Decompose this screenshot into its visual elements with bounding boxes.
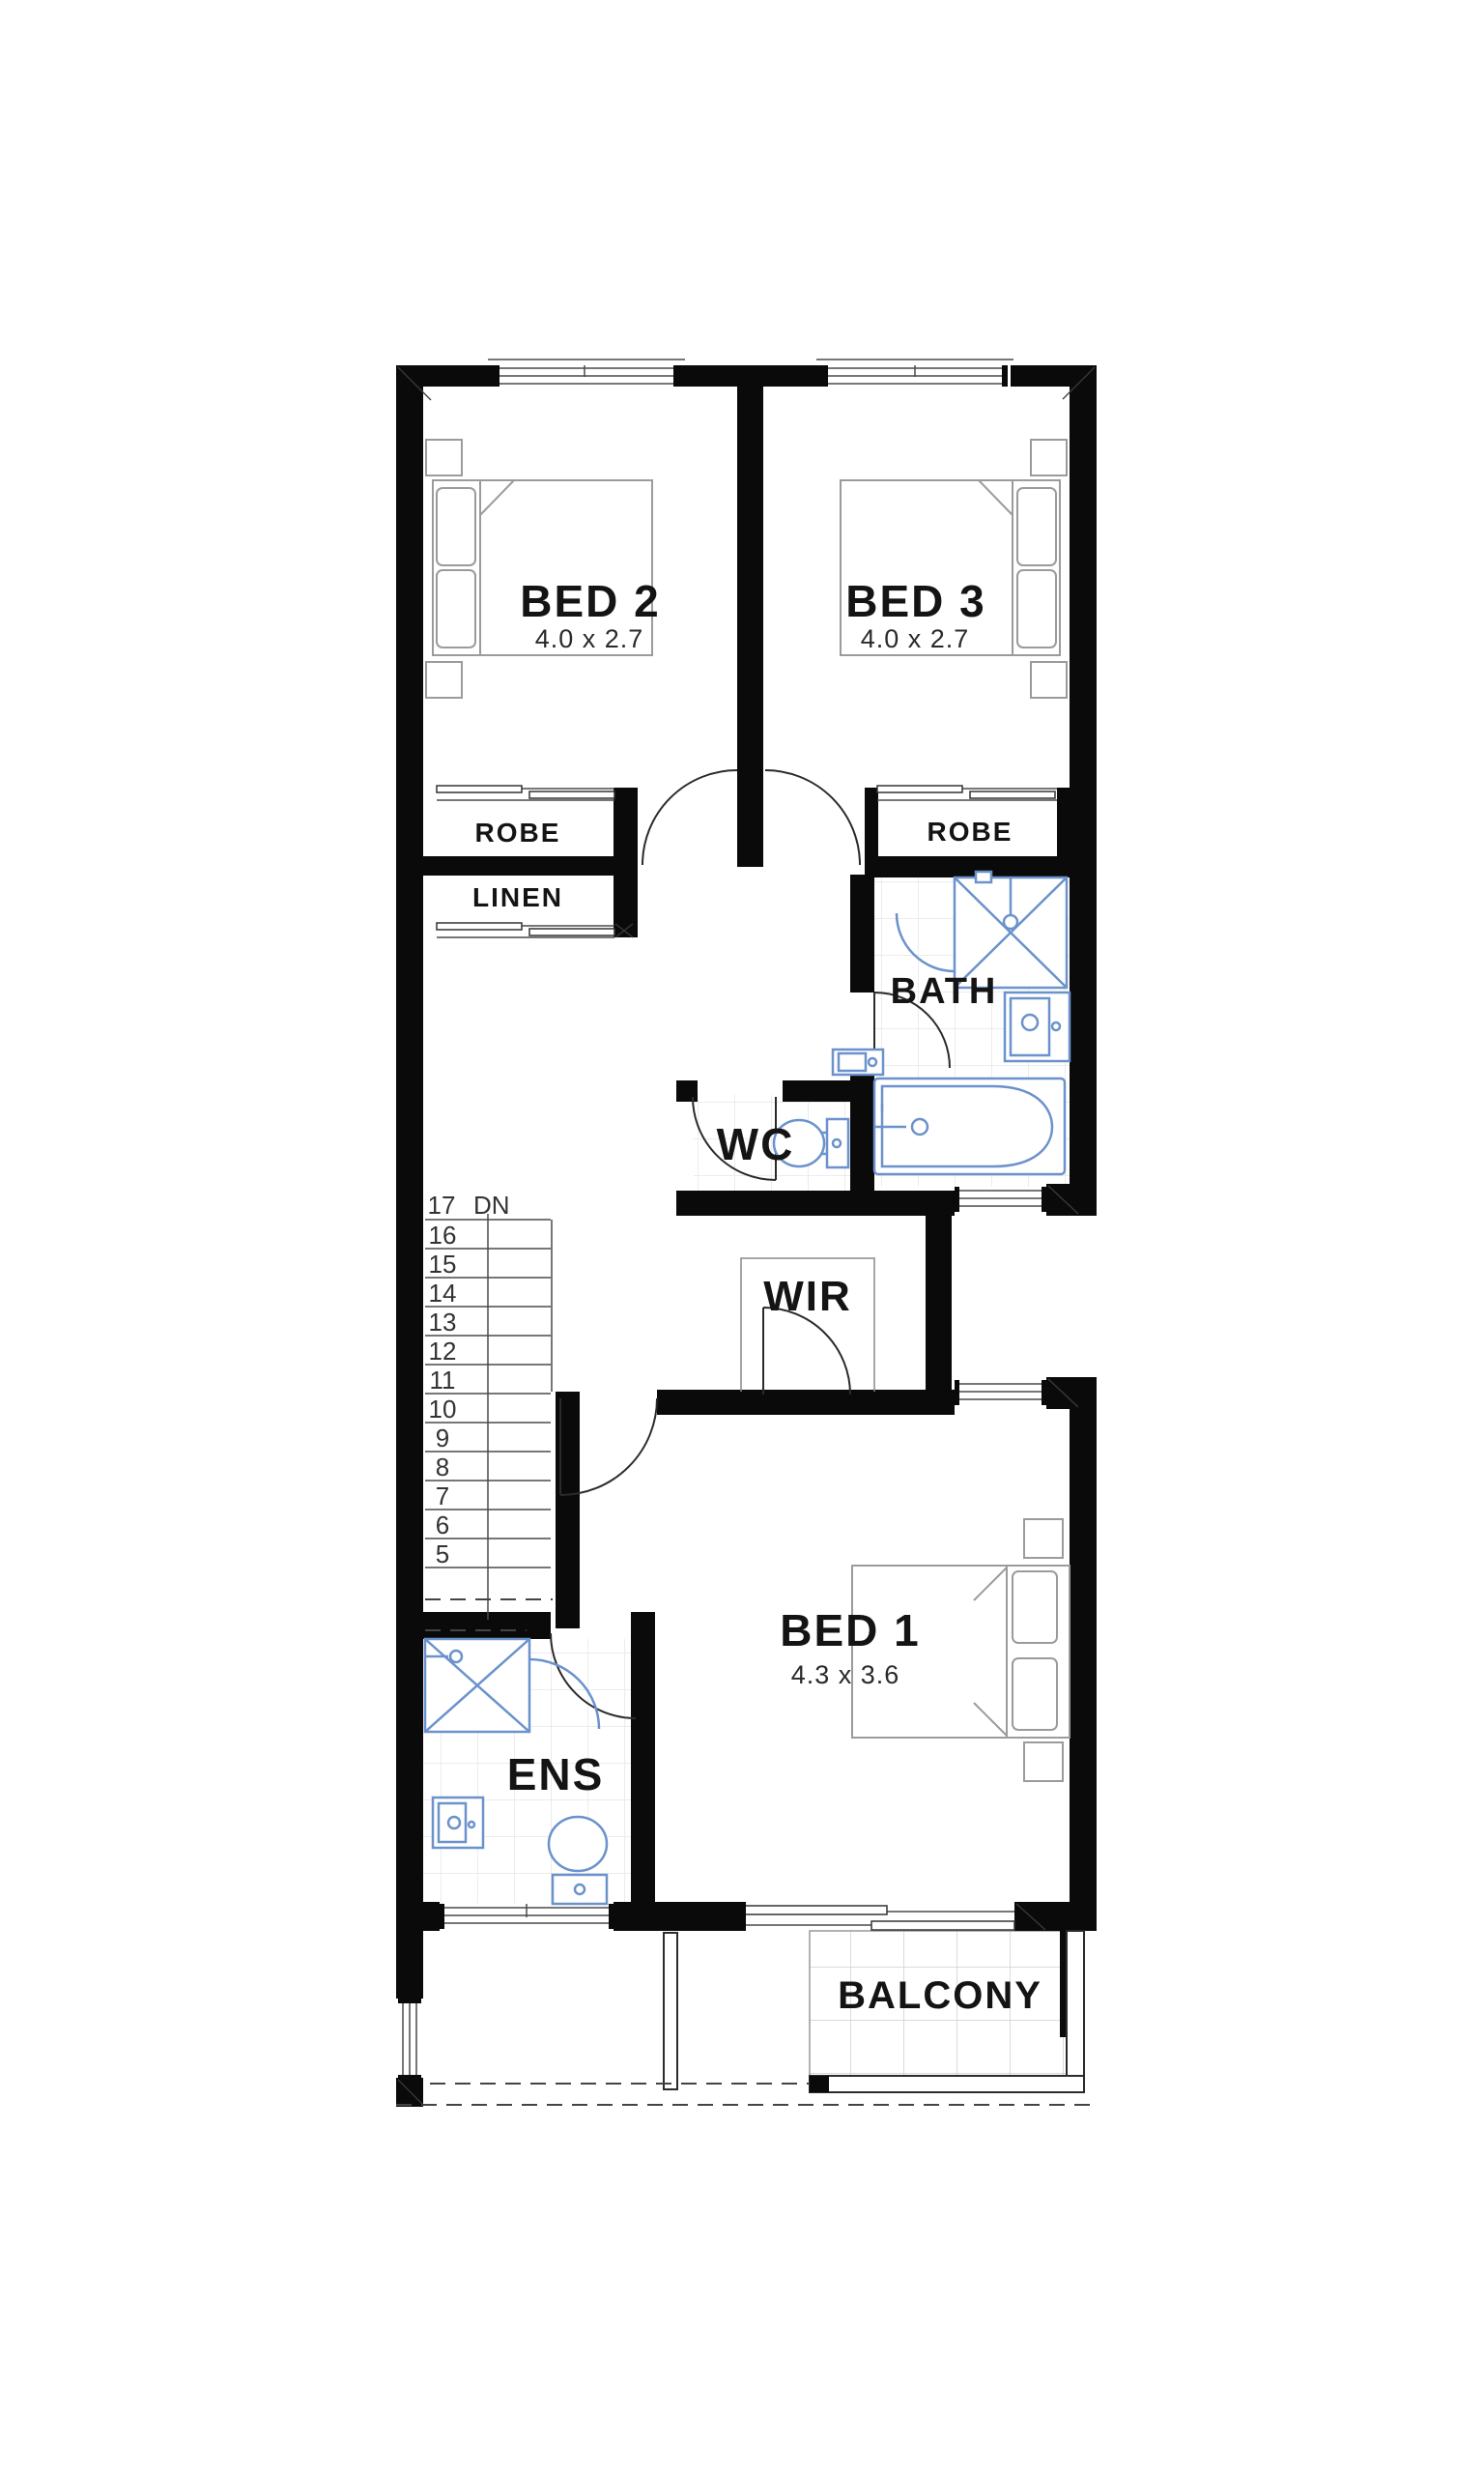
bed3-door-swing [765,770,860,865]
floor-plan-canvas: 17 DN 16 15 14 13 12 11 10 9 8 7 6 5 [0,0,1484,2474]
stair-tread-number: 9 [436,1424,449,1453]
balcony-railing-bottom [810,2076,1084,2092]
bathtub-icon [874,1079,1065,1174]
robe-right-label: ROBE [927,817,1013,847]
wir-door-swing [763,1308,850,1395]
bed1-label: BED 1 [780,1605,920,1655]
bath-label: BATH [891,971,998,1012]
powder-basin-icon [833,1050,883,1075]
stair-tread-number: 6 [436,1510,449,1539]
bed2-label: BED 2 [520,576,660,626]
terrace-edge-wall [664,1933,677,2089]
stair-tread-number: 10 [429,1395,457,1424]
bath-window [955,1187,1046,1212]
wir-label: WIR [763,1273,852,1320]
stair-tread-number: 12 [429,1337,457,1366]
linen-label: LINEN [472,882,563,912]
bed2-door-swing [642,770,737,865]
bedside-table-icon [1024,1742,1063,1781]
stair-tread-number: 13 [429,1308,457,1337]
bed3-dims: 4.0 x 2.7 [861,624,970,653]
balcony-sliding-door [736,1902,1014,1931]
bed2-furniture [426,440,652,698]
balcony-railing-right [1067,1931,1084,2092]
bedside-table-icon [1024,1519,1063,1558]
wc-label: WC [717,1119,795,1169]
bed1-dims: 4.3 x 3.6 [791,1660,900,1689]
ens-window [440,1904,614,1929]
linen-sliding-door [437,923,614,937]
bedside-table-icon [1031,440,1067,475]
side-wall-window [398,1999,421,2080]
stair-tread-number: 7 [436,1482,449,1510]
tiled-floors [423,875,1070,2076]
stair-tread-number: 11 [430,1366,456,1395]
bed1-window [955,1380,1046,1405]
bedside-table-icon [426,662,462,698]
ens-toilet-icon [549,1817,607,1904]
stair-tread-number: 16 [429,1221,457,1250]
ens-label: ENS [507,1749,605,1799]
bed2-dims: 4.0 x 2.7 [535,624,644,653]
stair-direction-label: DN [473,1191,510,1220]
bedside-table-icon [426,440,462,475]
stair-tread-number: 15 [429,1250,457,1279]
bed2-window [488,360,685,387]
bed3-furniture [841,440,1067,698]
stair-tread-number: 8 [436,1453,449,1482]
stair-tread-number: 5 [436,1539,449,1568]
staircase: 17 DN 16 15 14 13 12 11 10 9 8 7 6 5 [425,1191,553,1660]
bath-vanity-icon [1005,992,1070,1061]
floor-plan-svg: 17 DN 16 15 14 13 12 11 10 9 8 7 6 5 [0,0,1484,2474]
ens-vanity-icon [433,1798,483,1848]
robe-right-sliding-door [877,786,1057,800]
robe-left-sliding-door [437,786,614,800]
bedside-table-icon [1031,662,1067,698]
robe-left-label: ROBE [475,818,561,848]
bed3-label: BED 3 [845,576,985,626]
balcony-label: BALCONY [838,1974,1042,2017]
bed3-window [816,360,1013,387]
stair-top-number: 17 [428,1191,456,1220]
stair-tread-number: 14 [429,1279,457,1308]
